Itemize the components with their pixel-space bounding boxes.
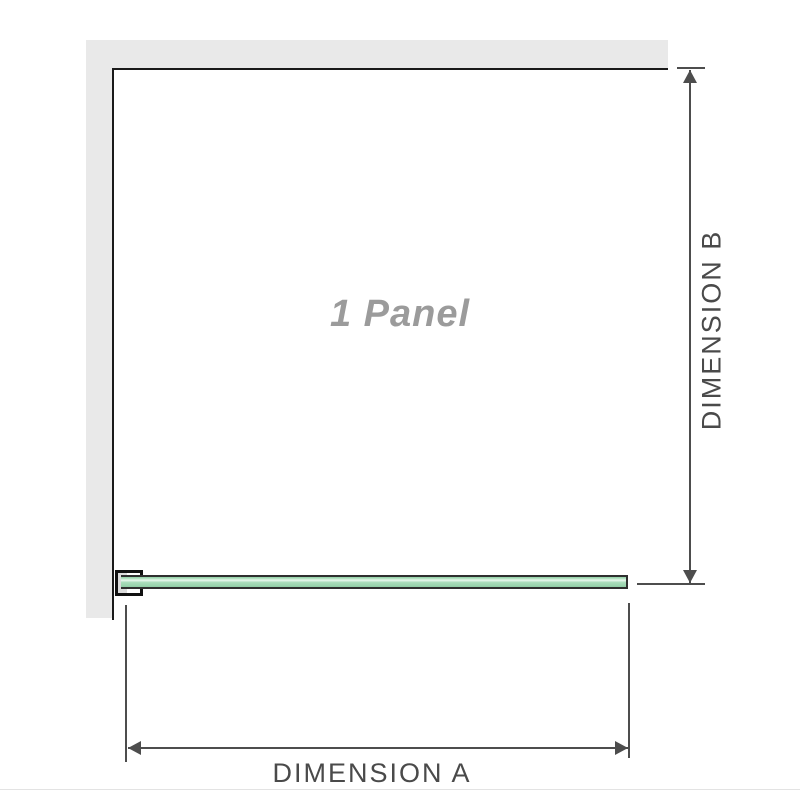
dimension-b-line	[689, 70, 691, 583]
dimension-b-tick-bottom	[637, 583, 705, 585]
dimension-a-label: DIMENSION A	[272, 758, 471, 789]
dimension-b-tick-top	[677, 67, 705, 69]
dimension-a-extension-right	[628, 603, 630, 758]
arrow-up-icon	[683, 70, 697, 83]
dimension-a-line	[128, 747, 628, 749]
arrow-left-icon	[128, 741, 141, 755]
dimension-b-label: DIMENSION B	[697, 230, 728, 431]
glass-panel	[121, 575, 628, 589]
panel-outline-left	[112, 68, 114, 620]
arrow-right-icon	[615, 741, 628, 755]
panel-count-label: 1 Panel	[240, 293, 560, 336]
arrow-down-icon	[683, 570, 697, 583]
image-edge-line	[0, 789, 800, 790]
wall-left	[86, 40, 112, 618]
shower-screen-dimension-diagram: 1 Panel DIMENSION B DIMENSION A	[0, 0, 800, 800]
panel-outline-top	[112, 68, 668, 70]
dimension-a-extension-left	[125, 605, 127, 762]
wall-top	[86, 40, 668, 68]
